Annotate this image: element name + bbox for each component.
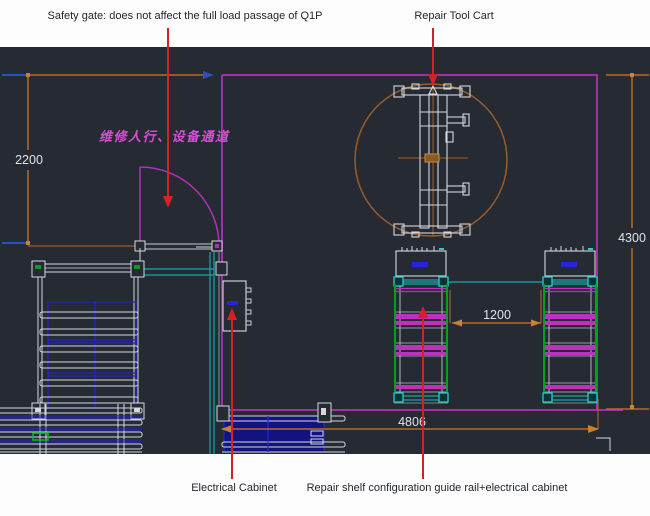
dim-text-1200: 1200 — [483, 308, 511, 322]
label-repair-shelf: Repair shelf configuration guide rail+el… — [287, 482, 587, 495]
label-safety-gate: Safety gate: does not affect the full lo… — [40, 10, 330, 23]
label-repair-tool-cart: Repair Tool Cart — [394, 10, 514, 23]
dim-text-4300: 4300 — [618, 231, 646, 245]
dim-text-2200: 2200 — [15, 153, 43, 167]
passage-label-cn: 维修人行、设备通道 — [99, 126, 230, 145]
cad-screenshot: Safety gate: does not affect the full lo… — [0, 0, 650, 516]
cad-canvas: 2200 4300 — [0, 0, 650, 516]
label-electrical-cabinet: Electrical Cabinet — [174, 482, 294, 495]
dim-text-4806: 4806 — [398, 415, 426, 429]
